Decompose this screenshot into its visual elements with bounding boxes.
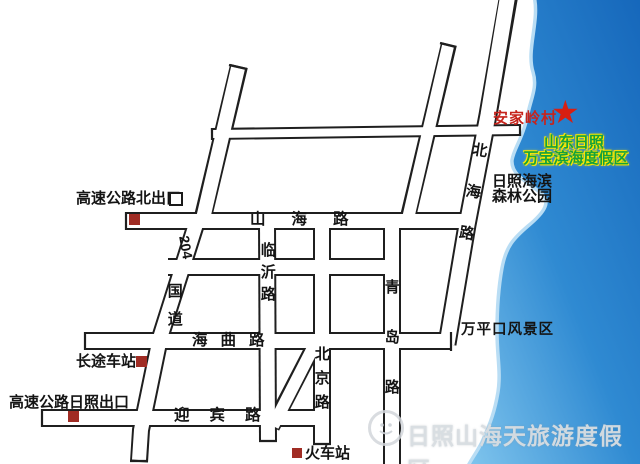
bus-station-marker [136, 356, 147, 367]
haiqu-road-label: 海曲路 [192, 333, 278, 349]
resort-title-line1: 山东日照 [494, 135, 640, 151]
highway-north-exit-marker [129, 214, 140, 225]
watermark-text: 日照山海天旅游度假区 [407, 417, 640, 464]
bus-station-label: 长途车站 [76, 354, 136, 370]
forest-park-label-line2: 森林公园 [492, 189, 552, 205]
train-station-label: 火车站 [305, 446, 350, 462]
watermark-logo-icon [368, 410, 404, 446]
yingbin-road-label: 迎宾路 [174, 408, 281, 424]
shanhai-road-label: 山海路 [250, 212, 375, 228]
anjialing-village-label: 安家岭村 [493, 111, 557, 127]
beijing-road-label: 北京路 [313, 346, 329, 418]
train-station-marker [292, 448, 302, 458]
tourist-map: 高速公路北出口 山海路 临沂路 北京路 青岛路 北海路 204 国道 海曲路 迎… [0, 0, 640, 464]
qingdao-road-label: 青岛路 [383, 279, 399, 429]
toll-gate-marker [169, 192, 183, 206]
resort-title-line2: 万宝滨海度假区 [496, 151, 640, 167]
highway-north-exit-label: 高速公路北出口 [76, 191, 181, 207]
highway-rizhao-exit-label: 高速公路日照出口 [9, 395, 129, 411]
national-road-label: 国道 [166, 283, 182, 339]
route-204-label: 204 [176, 235, 195, 261]
village-star-icon: ★ [551, 96, 580, 128]
linyi-road-label: 临沂路 [259, 242, 275, 308]
wanpingkou-scenic-label: 万平口风景区 [461, 323, 554, 338]
highway-rizhao-exit-marker [68, 411, 79, 422]
